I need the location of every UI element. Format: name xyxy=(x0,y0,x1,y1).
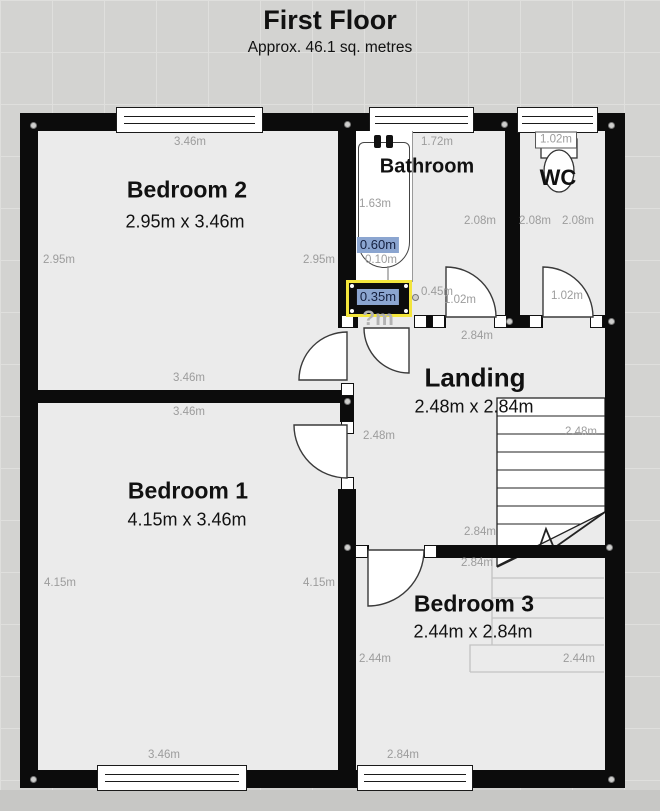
chip-selected-wall-width[interactable]: 0.35m xyxy=(357,289,399,305)
room-label-wc: WC xyxy=(540,165,577,191)
leader-line xyxy=(0,0,660,811)
dim-bed2-right: 2.95m xyxy=(303,254,335,266)
dim-bed2-bottom: 3.46m xyxy=(173,372,205,384)
room-dims-bedroom3: 2.44m x 2.84m xyxy=(413,622,532,643)
dim-wc-door: 1.02m xyxy=(551,290,583,302)
selection-handle[interactable] xyxy=(404,284,408,288)
dim-bed3-left: 2.44m xyxy=(359,653,391,665)
dim-wc-top: 1.02m xyxy=(535,132,577,149)
dim-landing-left: 2.48m xyxy=(363,430,395,442)
room-dims-bedroom2: 2.95m x 3.46m xyxy=(125,212,244,233)
selection-handle[interactable] xyxy=(350,309,354,313)
dim-bed1-top: 3.46m xyxy=(173,406,205,418)
room-dims-bedroom1: 4.15m x 3.46m xyxy=(127,510,246,531)
chip-bath-width[interactable]: 0.60m xyxy=(357,237,399,253)
dim-landing-bottom: 2.84m xyxy=(464,526,496,538)
dim-bed1-bottom: 3.46m xyxy=(148,749,180,761)
dim-landing-top: 2.84m xyxy=(461,330,493,342)
dim-wc-left: 2.08m xyxy=(519,215,551,227)
dim-bed1-right: 4.15m xyxy=(303,577,335,589)
dim-bed1-left: 4.15m xyxy=(44,577,76,589)
dim-wc-right: 2.08m xyxy=(562,215,594,227)
dim-bathroom-door: 1.02m xyxy=(444,294,476,306)
dim-bed2-left: 2.95m xyxy=(43,254,75,266)
dim-unknown-opening: ?m xyxy=(362,307,394,331)
room-label-landing: Landing xyxy=(424,363,525,394)
dim-bed3-right: 2.44m xyxy=(563,653,595,665)
room-label-bathroom: Bathroom xyxy=(380,156,474,179)
dim-bath-length: 1.63m xyxy=(359,198,391,210)
dim-bed3-bottom: 2.84m xyxy=(387,749,419,761)
selection-handle-right[interactable] xyxy=(412,294,419,301)
room-dims-landing: 2.48m x 2.84m xyxy=(414,397,533,418)
dim-bath-top: 1.72m xyxy=(421,136,453,148)
room-label-bedroom2: Bedroom 2 xyxy=(127,177,247,204)
dim-bath-right: 2.08m xyxy=(464,215,496,227)
selection-handle[interactable] xyxy=(404,309,408,313)
dim-stairs-width: 2.48m xyxy=(565,426,597,438)
room-label-bedroom1: Bedroom 1 xyxy=(128,478,248,505)
dim-bed2-top: 3.46m xyxy=(174,136,206,148)
selection-handle[interactable] xyxy=(350,284,354,288)
room-label-bedroom3: Bedroom 3 xyxy=(414,591,534,618)
floorplan-canvas: First Floor Approx. 46.1 sq. metres xyxy=(0,0,660,811)
dim-bed3-top: 2.84m xyxy=(461,557,493,569)
dim-bath-gap: 0.10m xyxy=(365,254,397,266)
